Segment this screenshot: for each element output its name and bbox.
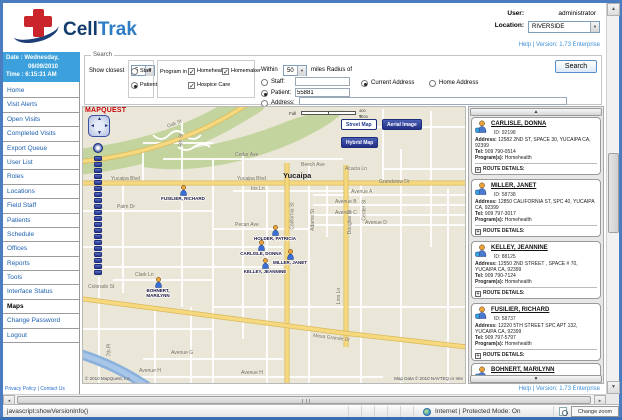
program-label: Program(s): <box>475 279 503 285</box>
street-label-text: Cedar Ave <box>235 152 258 158</box>
sidebar-item-label: Home <box>7 87 24 94</box>
within-select[interactable]: 50 ▼ <box>283 65 307 76</box>
program-value: Homehealth <box>505 341 532 347</box>
radius-staff-label: Staff: <box>271 79 285 85</box>
show-closest-label: Show closest <box>89 68 124 74</box>
time-line: Time : 6:15:31 AM <box>6 71 80 80</box>
expand-icon[interactable]: + <box>475 229 481 235</box>
street-label: Yucaipa <box>283 171 311 180</box>
patient-program-line: Program(s): Homehealth <box>475 341 597 347</box>
celltrak-logo: CellTrak <box>11 6 211 50</box>
street-label: Avenue G <box>171 350 193 356</box>
sidebar-item-label: Export Queue <box>7 145 47 152</box>
patient-address-line: Address: 12010 5TH STREET, SB-74, YUCAIP… <box>475 383 597 384</box>
mapquest-logo: MapQuest <box>85 107 126 114</box>
privacy-policy-link[interactable]: Privacy Policy | Contact Us <box>5 386 65 392</box>
street-label: Douglas St <box>347 210 353 234</box>
location-label: Location: <box>495 22 524 29</box>
patient-program-line: Program(s): Homehealth <box>475 155 597 161</box>
sidebar-item-label: Locations <box>7 188 35 195</box>
street-label: Clark Ln <box>135 272 154 278</box>
patient-id: ID: 58737 <box>494 316 516 322</box>
sidebar-item[interactable]: Home <box>3 84 80 98</box>
street-label: Center St <box>362 199 368 220</box>
map-view-button[interactable]: Aerial Image <box>382 119 422 130</box>
street-label-text: Iris Ln <box>251 186 265 192</box>
person-marker-icon[interactable] <box>257 240 266 251</box>
person-icon <box>475 120 488 133</box>
sidebar-item[interactable]: Maps <box>3 300 80 314</box>
zoom-step[interactable] <box>94 186 102 191</box>
radius-staff-input[interactable] <box>295 77 350 86</box>
map-marker-label: BOHNERT, MARILYNN <box>136 288 180 298</box>
person-icon <box>475 244 488 257</box>
patient-id: ID: 88125 <box>494 254 516 260</box>
street-label-text: Avenue G <box>171 350 193 356</box>
street-label: Grandview Dr <box>379 179 410 185</box>
patient-program-line: Program(s): Homehealth <box>475 217 597 223</box>
zoom-step[interactable] <box>94 228 102 233</box>
scroll-right-icon: ► <box>598 398 602 403</box>
horizontal-scroll-thumb[interactable] <box>17 396 591 404</box>
street-label: Beech Ave <box>301 162 325 168</box>
route-details-label: ROUTE DETAILS: <box>483 352 525 358</box>
street-label-text: Pecan Ave <box>235 222 259 228</box>
browser-status-bar: javascript:showVersionInfo() Internet | … <box>3 404 619 417</box>
street-label-text: Avenue H <box>241 370 263 376</box>
vertical-scroll-thumb[interactable] <box>608 153 619 233</box>
map-attribution-left: © 2010 MapQuest, Inc. <box>85 376 131 381</box>
expand-icon[interactable]: + <box>475 291 481 297</box>
patient-address-line: Address: 12550 2ND STREET , SPACE # 70, … <box>475 261 597 273</box>
street-label: Avenue B <box>335 199 357 205</box>
status-separator <box>553 406 554 417</box>
patient-name-link[interactable]: CARLISLE, DONNA <box>491 121 546 127</box>
sidebar-item-label: Maps <box>7 303 24 310</box>
zoom-step[interactable] <box>94 264 102 269</box>
scale-bar <box>301 111 356 115</box>
brand-text: CellTrak <box>63 19 137 41</box>
street-label: Adams St <box>310 209 316 231</box>
zoom-step[interactable] <box>94 192 102 197</box>
sidebar: Date : Wednesday, 06/09/2010 Time : 6:15… <box>3 52 80 394</box>
person-marker-icon[interactable] <box>286 249 295 260</box>
patient-address-line: Address: 12582 2ND ST, SPACE 30, YUCAIPA… <box>475 137 597 149</box>
sidebar-item-label: Change Password <box>7 317 60 324</box>
card-divider <box>475 225 597 226</box>
user-value: administrator <box>558 10 596 17</box>
user-label: User: <box>507 10 524 17</box>
location-value: RIVERSIDE <box>532 24 564 30</box>
home-address-label: Home Address <box>439 80 478 86</box>
app-window: CellTrak User: administrator Location: R… <box>0 0 622 420</box>
help-version-link-bottom[interactable]: Help | Version: 1.73 Enterprise <box>519 386 600 392</box>
pan-up-icon[interactable]: ▲ <box>97 117 102 122</box>
sidebar-item-label: Reports <box>7 260 30 267</box>
card-divider <box>475 349 597 350</box>
street-label-text: Douglas St <box>347 210 353 234</box>
sidebar-item[interactable]: Visit Alerts <box>3 98 80 112</box>
user-row: User: administrator <box>460 8 600 20</box>
status-separator <box>387 406 388 417</box>
status-zone-text: Internet | Protected Mode: On <box>435 408 521 415</box>
patient-card: CARLISLE, DONNA ID: 92198 Address: 12582… <box>471 117 601 175</box>
street-label-text: Grandview Dr <box>379 179 410 185</box>
street-label: California St <box>290 202 296 229</box>
sidebar-item[interactable]: Tools <box>3 271 80 285</box>
street-label-text: Avenue D <box>365 220 387 226</box>
scale-full-label: Full <box>289 111 296 116</box>
program-checkbox-label: Hospice Care <box>197 82 230 88</box>
address-value: 12010 5TH STREET, SB-74, YUCAIPA CA, 923… <box>475 383 594 384</box>
patient-card-head: KELLEY, JEANNINE ID: 88125 <box>475 244 597 257</box>
sidebar-item-label: Schedule <box>7 231 34 238</box>
vertical-scrollbar[interactable]: ▲ ▼ <box>606 3 619 394</box>
street-label-text: Acacia Ln <box>345 166 367 172</box>
zoom-page-icon <box>559 407 567 416</box>
expand-icon[interactable]: + <box>475 353 481 359</box>
sidebar-item[interactable]: Roles <box>3 170 80 184</box>
zoom-step[interactable] <box>94 174 102 179</box>
street-label: Acacia Ln <box>345 166 367 172</box>
status-separator <box>374 406 375 417</box>
street-label: Avenue A <box>351 189 372 195</box>
person-marker-icon[interactable] <box>154 277 163 288</box>
patient-id: ID: 92198 <box>494 130 516 136</box>
status-separator <box>413 406 414 417</box>
status-separator <box>400 406 401 417</box>
street-label-text: Colorado St <box>88 284 114 290</box>
staff-patient-group: Staff Patient <box>128 60 154 98</box>
patient-card-body: Address: 12850 CALIFORNIA ST, SPC 40, YU… <box>475 199 597 235</box>
street-label: Yucaipa Blvd <box>111 176 140 182</box>
street-label: Cedar Ave <box>235 152 258 158</box>
scroll-down-icon: ▼ <box>534 376 539 382</box>
location-select[interactable]: RIVERSIDE ▼ <box>528 21 600 33</box>
help-version-link[interactable]: Help | Version: 1.73 Enterprise <box>519 42 600 48</box>
zoom-step[interactable] <box>94 162 102 167</box>
patient-radio-label: Patient <box>140 82 157 88</box>
zoom-step[interactable] <box>94 180 102 185</box>
program-value: Homehealth <box>505 217 532 223</box>
status-separator <box>348 406 349 417</box>
globe-icon <box>423 408 431 416</box>
street-label: Avenue H <box>241 370 263 376</box>
street-label: Palm Dr <box>117 204 135 210</box>
map-view-button[interactable]: Street Map <box>341 119 377 130</box>
map-marker-label: CARLISLE, DONNA <box>239 251 283 256</box>
results-panel: ▲ CARLISLE, DONNA ID: 92198 Address: 125… <box>468 106 604 384</box>
sidebar-item[interactable]: Offices <box>3 242 80 256</box>
program-checkbox-label: Homemaker <box>231 68 261 74</box>
sidebar-item-label: Interface Status <box>7 288 53 295</box>
sidebar-item[interactable]: Export Queue <box>3 142 80 156</box>
zoom-step[interactable] <box>94 210 102 215</box>
route-details-toggle[interactable]: +ROUTE DETAILS: <box>475 228 597 235</box>
person-marker-icon[interactable] <box>271 225 280 236</box>
chevron-down-icon[interactable]: ▼ <box>590 22 599 32</box>
patient-name-link[interactable]: MILLER, JANET <box>491 183 536 189</box>
patient-card-head: MILLER, JANET ID: 58738 <box>475 182 597 195</box>
date-line2: 06/09/2010 <box>6 63 80 72</box>
street-label: Yucaipa Blvd <box>237 176 266 182</box>
street-label-text: Yucaipa Blvd <box>237 176 266 182</box>
street-label-text: 5th St <box>179 133 185 146</box>
staff-radio[interactable] <box>131 68 138 75</box>
radius-patient-label: Patient: <box>271 90 291 96</box>
patient-address-line: Address: 12220 5TH STREET SPC APT 132, Y… <box>475 323 597 335</box>
patient-card-head: FUSILIER, RICHARD ID: 58737 <box>475 306 597 319</box>
sidebar-item[interactable]: Reports <box>3 257 80 271</box>
street-label-text: Avenue H <box>139 368 161 374</box>
scroll-down-icon: ▼ <box>611 384 616 390</box>
sidebar-item-label: Field Staff <box>7 202 36 209</box>
zoom-knob-icon[interactable] <box>93 143 103 153</box>
route-details-toggle[interactable]: +ROUTE DETAILS: <box>475 290 597 297</box>
radius-staff-radio[interactable] <box>261 79 268 86</box>
street-label-text: Avenue A <box>351 189 372 195</box>
status-separator <box>361 406 362 417</box>
header-user-area: User: administrator Location: RIVERSIDE … <box>460 8 600 32</box>
medical-cross-icon <box>24 16 52 27</box>
datetime-box: Date : Wednesday, 06/09/2010 Time : 6:15… <box>3 52 80 82</box>
program-label: Program(s): <box>475 217 503 223</box>
street-label-text: Palm Dr <box>117 204 135 210</box>
person-marker-icon[interactable] <box>261 258 270 269</box>
patient-card-body: Address: 12010 5TH STREET, SB-74, YUCAIP… <box>475 383 597 384</box>
street-label-text: California St <box>290 202 296 229</box>
sidebar-item[interactable]: Completed Visits <box>3 127 80 141</box>
zoom-step[interactable] <box>94 246 102 251</box>
patient-card-body: Address: 12582 2ND ST, SPACE 30, YUCAIPA… <box>475 137 597 173</box>
horizontal-scrollbar[interactable]: ◄ ► <box>3 394 606 404</box>
zoom-step[interactable] <box>94 156 102 161</box>
zoom-step[interactable] <box>94 168 102 173</box>
zoom-step[interactable] <box>94 258 102 263</box>
map-view-buttons: Street Map Aerial Image Hybrid Map <box>341 119 465 130</box>
sidebar-item[interactable]: Interface Status <box>3 285 80 299</box>
sidebar-nav: Home Visit Alerts Open Visits Completed … <box>3 84 80 343</box>
street-label-text: Linn Ln <box>336 288 342 304</box>
street-label-text: Yucaipa Blvd <box>111 176 140 182</box>
zoom-step[interactable] <box>94 270 102 275</box>
location-row: Location: RIVERSIDE ▼ <box>460 20 600 32</box>
map-compass-control[interactable]: ▲ ▼ ◄ ► <box>88 115 110 137</box>
brand-second: Trak <box>98 19 137 40</box>
map-view-button-label: Aerial Image <box>387 122 417 128</box>
sidebar-item-label: User List <box>7 159 33 166</box>
address-label: Address: <box>475 383 497 384</box>
zoom-step[interactable] <box>94 240 102 245</box>
program-value: Homehealth <box>505 155 532 161</box>
person-icon <box>475 182 488 195</box>
expand-icon[interactable]: + <box>475 167 481 173</box>
zoom-step[interactable] <box>94 204 102 209</box>
sidebar-item-label: Open Visits <box>7 116 40 123</box>
scroll-down-button[interactable]: ▼ <box>607 381 620 394</box>
sidebar-item[interactable]: Locations <box>3 185 80 199</box>
sidebar-item-label: Tools <box>7 274 22 281</box>
sidebar-item[interactable]: Field Staff <box>3 199 80 213</box>
pan-right-icon[interactable]: ► <box>104 124 109 129</box>
map-canvas[interactable]: MapQuest ▲ ▼ ◄ ► <box>82 106 466 384</box>
street-label-text: Yucaipa <box>283 171 311 180</box>
search-button[interactable]: Search <box>555 60 597 73</box>
map-marker-label: MILLER, JANET <box>268 260 312 265</box>
route-details-toggle[interactable]: +ROUTE DETAILS: <box>475 166 597 173</box>
street-label: Pecan Ave <box>235 222 259 228</box>
patient-card-body: Address: 12220 5TH STREET SPC APT 132, Y… <box>475 323 597 359</box>
home-address-radio[interactable] <box>429 80 436 87</box>
route-details-label: ROUTE DETAILS: <box>483 166 525 172</box>
street-label-text: 7th Pl <box>106 344 112 357</box>
chevron-down-icon[interactable]: ▼ <box>297 66 306 76</box>
sidebar-item[interactable]: Schedule <box>3 228 80 242</box>
street-label: Avenue H <box>139 368 161 374</box>
within-label: Within <box>261 67 278 73</box>
patient-radio[interactable] <box>131 82 138 89</box>
staff-radio-label: Staff <box>140 68 151 74</box>
radius-label: miles Radius of <box>311 67 352 73</box>
map-graphic <box>83 107 466 384</box>
program-value: Homehealth <box>505 279 532 285</box>
scroll-up-icon: ▲ <box>611 6 616 12</box>
sidebar-item-label: Offices <box>7 245 27 252</box>
current-address-radio[interactable] <box>361 80 368 87</box>
street-label: 7th Pl <box>106 344 112 357</box>
patient-address-line: Address: 12850 CALIFORNIA ST, SPC 40, YU… <box>475 199 597 211</box>
pan-left-icon[interactable]: ◄ <box>90 124 95 129</box>
sidebar-item[interactable]: User List <box>3 156 80 170</box>
zoom-step[interactable] <box>94 222 102 227</box>
program-group: Program in Homehealth Homemaker Hospice … <box>157 60 255 98</box>
radius-patient-input[interactable] <box>295 88 350 97</box>
street-label: 5th St <box>179 133 185 146</box>
patient-card: FUSILIER, RICHARD ID: 58737 Address: 122… <box>471 303 601 361</box>
browser-client-area: CellTrak User: administrator Location: R… <box>3 3 606 394</box>
street-label: Iris Ln <box>251 186 265 192</box>
search-legend: Search <box>91 52 114 58</box>
patient-program-line: Program(s): Homehealth <box>475 279 597 285</box>
scroll-left-icon: ◄ <box>7 398 11 403</box>
change-zoom-level-button[interactable]: Change zoom level <box>571 406 619 417</box>
patient-id: ID: 58738 <box>494 192 516 198</box>
scroll-up-button[interactable]: ▲ <box>607 3 620 16</box>
patient-card: MILLER, JANET ID: 58738 Address: 12850 C… <box>471 179 601 237</box>
sidebar-item-label: Completed Visits <box>7 130 56 137</box>
radius-address-input[interactable] <box>299 97 567 105</box>
map-view-button-label: Street Map <box>346 122 372 128</box>
program-label: Program(s): <box>475 155 503 161</box>
pan-down-icon[interactable]: ▼ <box>97 131 102 136</box>
radius-patient-radio[interactable] <box>261 90 268 97</box>
program-label: Program in <box>160 69 187 75</box>
patient-name-link[interactable]: BOHNERT, MARILYNN <box>491 367 554 373</box>
sidebar-item-label: Patients <box>7 217 31 224</box>
brand-first: Cell <box>63 19 98 40</box>
map-view-button[interactable]: Hybrid Map <box>341 137 378 148</box>
scroll-up-icon: ▲ <box>534 109 539 115</box>
sidebar-item-label: Roles <box>7 173 24 180</box>
street-label-text: Center St <box>362 199 368 220</box>
within-value: 50 <box>287 68 294 74</box>
scroll-grip-icon <box>302 399 310 403</box>
checkbox-icon[interactable] <box>188 68 195 75</box>
person-icon <box>475 306 488 319</box>
patient-card-head: CARLISLE, DONNA ID: 92198 <box>475 120 597 133</box>
patient-card-body: Address: 12550 2ND STREET , SPACE # 70, … <box>475 261 597 297</box>
street-label-text: Avenue B <box>335 199 357 205</box>
zoom-step[interactable] <box>94 198 102 203</box>
street-label-text: Clark Ln <box>135 272 154 278</box>
patient-card: KELLEY, JEANNINE ID: 88125 Address: 1255… <box>471 241 601 299</box>
current-address-label: Current Address <box>371 80 414 86</box>
results-scroll-down-button[interactable]: ▼ <box>470 375 602 383</box>
checkbox-icon[interactable] <box>188 82 195 89</box>
street-label: Colorado St <box>88 284 114 290</box>
map-view-button-label: Hybrid Map <box>346 140 373 146</box>
street-label: Avenue C <box>335 210 357 216</box>
map-attribution-right: Map Data © 2010 NAVTEQ or Inte <box>394 376 463 381</box>
street-label-text: Avenue C <box>335 210 357 216</box>
route-details-label: ROUTE DETAILS: <box>483 228 525 234</box>
street-label: Linn Ln <box>336 288 342 304</box>
zoom-step[interactable] <box>94 252 102 257</box>
card-divider <box>475 287 597 288</box>
program-label: Program(s): <box>475 341 503 347</box>
person-marker-icon[interactable] <box>179 185 188 196</box>
street-label-text: Beech Ave <box>301 162 325 168</box>
street-label-text: Adams St <box>310 209 316 231</box>
sidebar-item-label: Visit Alerts <box>7 101 37 108</box>
results-scroll-up-button[interactable]: ▲ <box>470 108 602 116</box>
sidebar-item[interactable]: Change Password <box>3 314 80 328</box>
map-marker-label: KELLEY, JEANNINE <box>243 269 287 274</box>
search-panel: Search Show closest 5 ▼ Staff Patient Pr… <box>84 55 602 105</box>
status-script-text: javascript:showVersionInfo() <box>7 408 88 415</box>
sidebar-item[interactable]: Patients <box>3 214 80 228</box>
checkbox-icon[interactable] <box>222 68 229 75</box>
card-divider <box>475 163 597 164</box>
route-details-label: ROUTE DETAILS: <box>483 290 525 296</box>
route-details-toggle[interactable]: +ROUTE DETAILS: <box>475 352 597 359</box>
street-label: Avenue D <box>365 220 387 226</box>
zoom-step[interactable] <box>94 234 102 239</box>
sidebar-item-label: Logout <box>7 332 27 339</box>
map-marker-label: FUSILIER, RICHARD <box>161 196 205 201</box>
scrollbar-corner <box>606 394 619 404</box>
zoom-step[interactable] <box>94 216 102 221</box>
sidebar-item[interactable]: Open Visits <box>3 113 80 127</box>
patient-name-link[interactable]: FUSILIER, RICHARD <box>491 307 549 313</box>
sidebar-item[interactable]: Logout <box>3 329 80 343</box>
date-line1: Date : Wednesday, <box>6 54 80 63</box>
app-header: CellTrak User: administrator Location: R… <box>3 3 606 52</box>
patient-name-link[interactable]: KELLEY, JEANNINE <box>491 245 548 251</box>
